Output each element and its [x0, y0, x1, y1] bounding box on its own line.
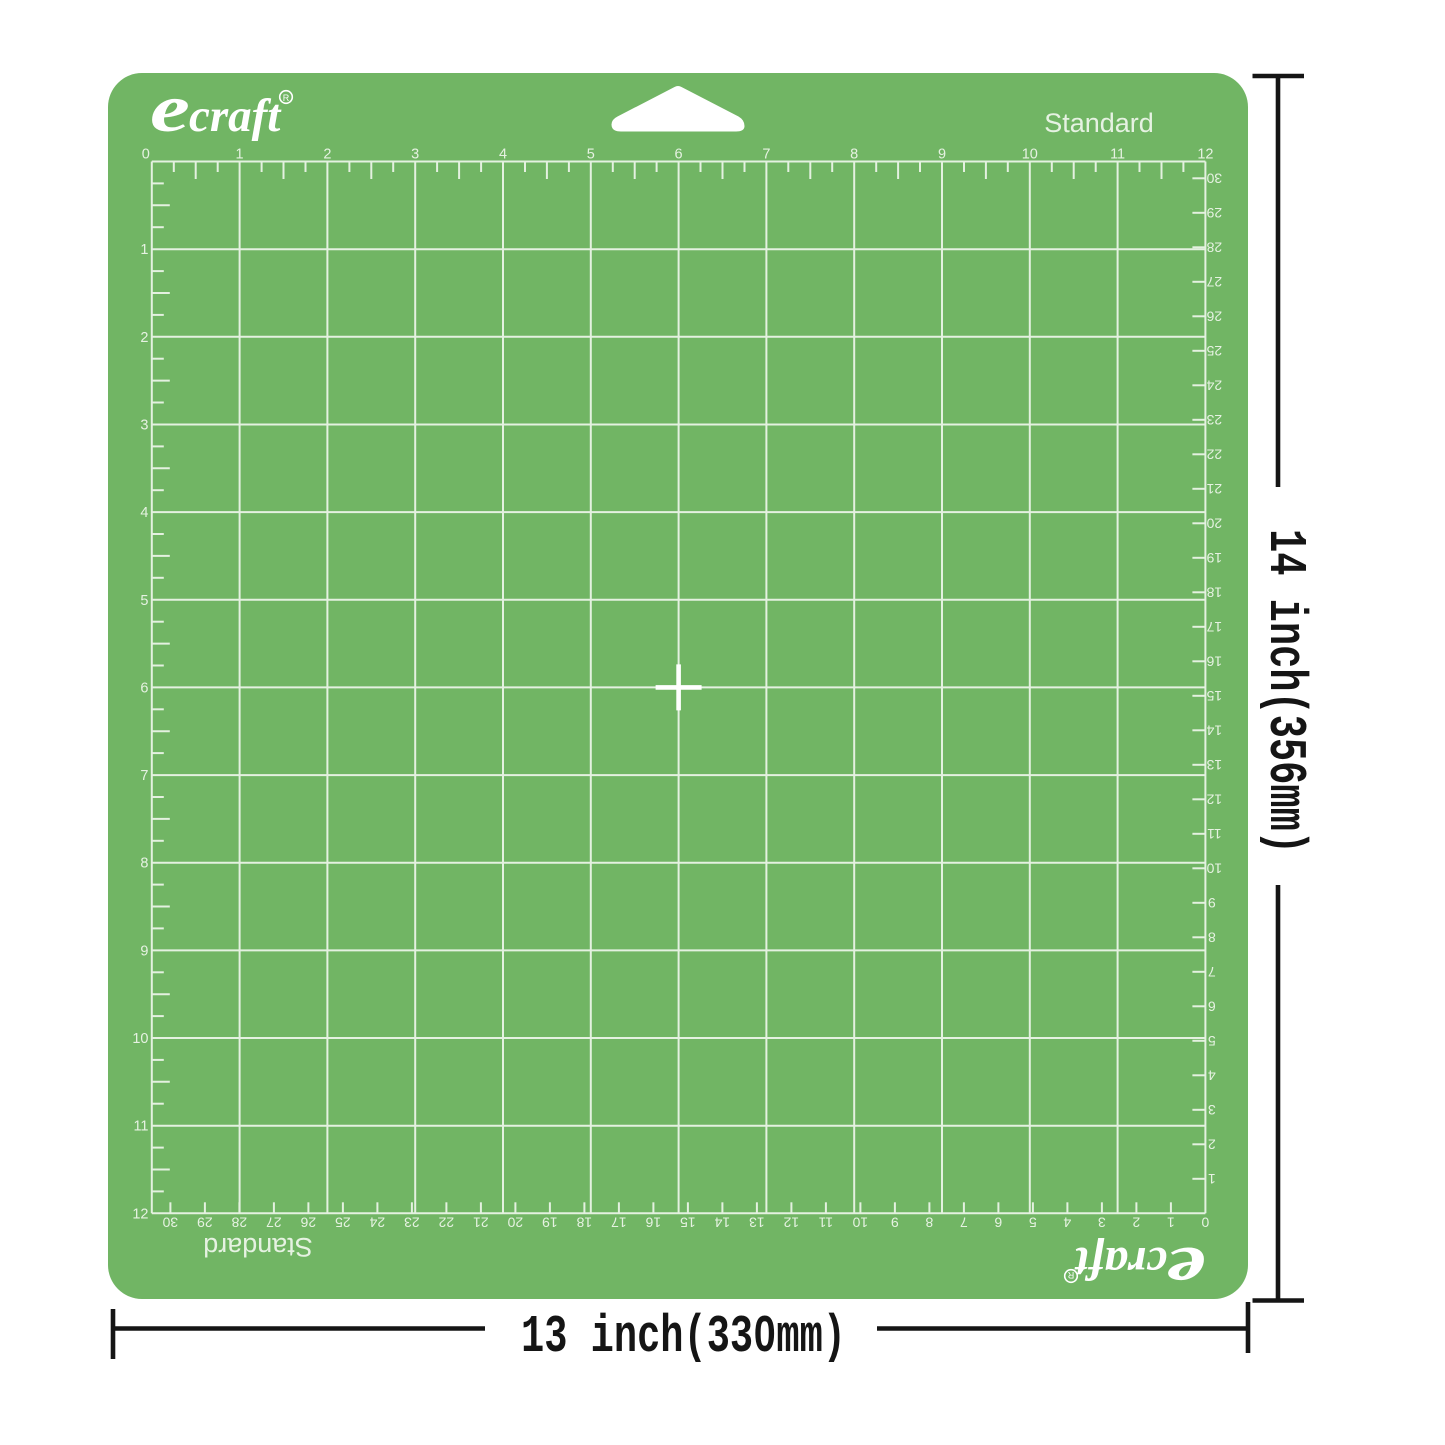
- svg-text:20: 20: [1206, 515, 1222, 531]
- svg-text:28: 28: [231, 1215, 247, 1231]
- svg-text:14 inch(356mm): 14 inch(356mm): [1255, 529, 1315, 854]
- svg-text:30: 30: [1206, 170, 1222, 186]
- svg-text:16: 16: [645, 1215, 661, 1231]
- svg-text:R: R: [283, 93, 290, 103]
- svg-text:1: 1: [140, 242, 148, 258]
- svg-text:13: 13: [1206, 757, 1222, 773]
- svg-text:4: 4: [499, 147, 507, 163]
- svg-text:8: 8: [1208, 929, 1216, 945]
- svg-text:Standard: Standard: [203, 1232, 313, 1262]
- svg-text:craft: craft: [189, 90, 282, 142]
- svg-text:1: 1: [236, 147, 244, 163]
- svg-text:5: 5: [587, 147, 595, 163]
- svg-text:9: 9: [1208, 895, 1216, 911]
- svg-text:2: 2: [140, 330, 148, 346]
- svg-text:10: 10: [1022, 147, 1038, 163]
- svg-text:11: 11: [1110, 147, 1125, 163]
- svg-text:30: 30: [162, 1215, 178, 1231]
- svg-text:24: 24: [1206, 377, 1222, 393]
- svg-text:14: 14: [1206, 722, 1222, 738]
- svg-text:7: 7: [960, 1215, 968, 1231]
- svg-text:25: 25: [1206, 343, 1222, 359]
- svg-text:10: 10: [852, 1215, 868, 1231]
- svg-text:2: 2: [323, 147, 331, 163]
- svg-text:26: 26: [300, 1215, 316, 1231]
- svg-text:12: 12: [1206, 791, 1222, 807]
- svg-text:28: 28: [1206, 239, 1222, 255]
- svg-text:23: 23: [1206, 412, 1222, 428]
- svg-text:23: 23: [404, 1215, 420, 1231]
- svg-text:2: 2: [1132, 1215, 1140, 1231]
- svg-text:14: 14: [714, 1215, 730, 1231]
- svg-text:12: 12: [132, 1206, 148, 1222]
- svg-text:15: 15: [1206, 688, 1222, 704]
- svg-text:21: 21: [473, 1215, 489, 1231]
- svg-text:19: 19: [1206, 550, 1222, 566]
- svg-text:3: 3: [1098, 1215, 1106, 1231]
- svg-text:3: 3: [1208, 1102, 1216, 1118]
- svg-text:11: 11: [818, 1215, 833, 1231]
- svg-text:16: 16: [1206, 653, 1222, 669]
- svg-text:11: 11: [133, 1119, 148, 1135]
- svg-text:1: 1: [1167, 1215, 1175, 1231]
- svg-text:6: 6: [140, 680, 148, 696]
- svg-text:7: 7: [762, 147, 770, 163]
- svg-text:1: 1: [1208, 1171, 1216, 1187]
- svg-text:6: 6: [675, 147, 683, 163]
- svg-text:7: 7: [1208, 964, 1216, 980]
- svg-text:R: R: [1067, 1270, 1074, 1280]
- svg-text:21: 21: [1206, 481, 1222, 497]
- svg-text:13 inch(330mm): 13 inch(330mm): [521, 1307, 846, 1367]
- svg-text:27: 27: [266, 1215, 282, 1231]
- svg-text:0: 0: [142, 147, 150, 163]
- svg-text:6: 6: [1208, 998, 1216, 1014]
- svg-text:8: 8: [925, 1215, 933, 1231]
- svg-text:11: 11: [1207, 826, 1222, 842]
- svg-text:6: 6: [994, 1215, 1002, 1231]
- svg-text:5: 5: [1029, 1215, 1037, 1231]
- svg-text:15: 15: [680, 1215, 696, 1231]
- svg-text:20: 20: [507, 1215, 523, 1231]
- svg-text:26: 26: [1206, 308, 1222, 324]
- svg-text:0: 0: [1201, 1215, 1209, 1231]
- svg-text:18: 18: [576, 1215, 592, 1231]
- svg-text:9: 9: [938, 147, 946, 163]
- svg-text:22: 22: [1206, 446, 1222, 462]
- svg-text:2: 2: [1208, 1136, 1216, 1152]
- svg-text:29: 29: [1206, 205, 1222, 221]
- svg-text:9: 9: [891, 1215, 899, 1231]
- svg-text:18: 18: [1206, 584, 1222, 600]
- svg-text:4: 4: [1063, 1215, 1071, 1231]
- svg-text:5: 5: [140, 593, 148, 609]
- svg-text:19: 19: [542, 1215, 558, 1231]
- svg-text:17: 17: [1206, 619, 1222, 635]
- svg-text:craft: craft: [1074, 1237, 1167, 1289]
- svg-text:3: 3: [140, 418, 148, 434]
- svg-text:9: 9: [140, 943, 148, 959]
- svg-text:10: 10: [132, 1031, 148, 1047]
- svg-text:4: 4: [1208, 1067, 1216, 1083]
- svg-text:Standard: Standard: [1044, 108, 1154, 138]
- svg-text:e: e: [1166, 1233, 1206, 1308]
- svg-text:12: 12: [1197, 147, 1213, 163]
- svg-text:10: 10: [1206, 860, 1222, 876]
- svg-text:e: e: [150, 71, 190, 146]
- svg-text:24: 24: [369, 1215, 385, 1231]
- svg-text:17: 17: [611, 1215, 627, 1231]
- svg-text:13: 13: [749, 1215, 765, 1231]
- svg-text:8: 8: [140, 856, 148, 872]
- svg-text:4: 4: [140, 505, 148, 521]
- svg-text:7: 7: [140, 768, 148, 784]
- svg-text:8: 8: [850, 147, 858, 163]
- svg-text:22: 22: [438, 1215, 454, 1231]
- svg-text:12: 12: [783, 1215, 799, 1231]
- svg-text:25: 25: [335, 1215, 351, 1231]
- svg-text:3: 3: [411, 147, 419, 163]
- svg-text:29: 29: [197, 1215, 213, 1231]
- svg-text:27: 27: [1206, 274, 1222, 290]
- svg-text:5: 5: [1208, 1033, 1216, 1049]
